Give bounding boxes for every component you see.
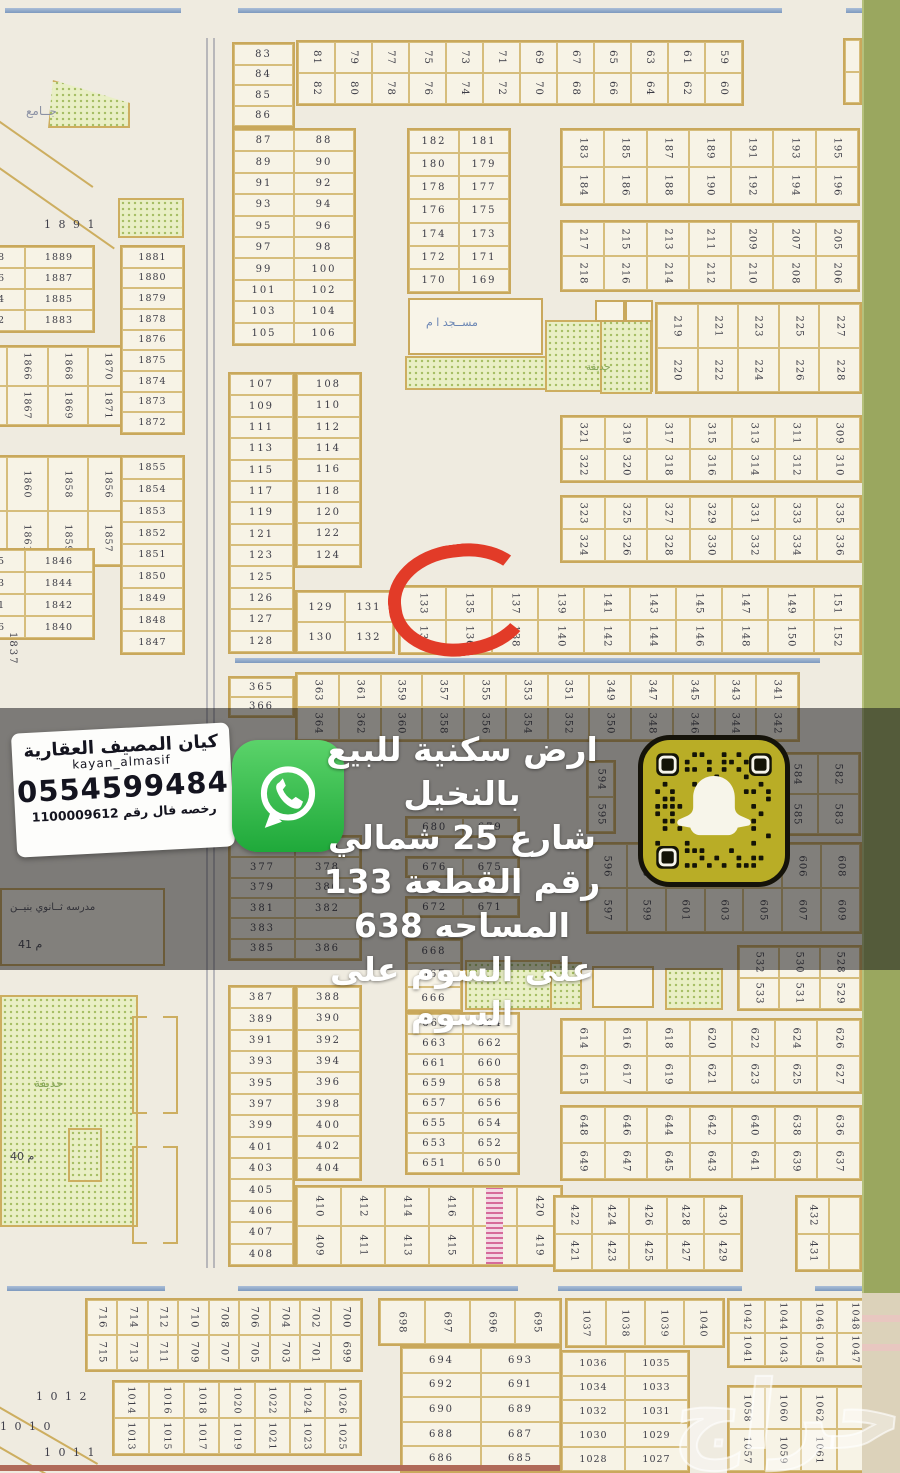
- plot-cell: 1039: [645, 1300, 684, 1346]
- plot-cell: 1842: [25, 594, 93, 616]
- plot-cell: 1888: [0, 247, 25, 268]
- plot-cell: 317: [647, 417, 690, 449]
- plot-cell: 651: [407, 1153, 463, 1173]
- plot-cell: 180: [409, 153, 459, 176]
- plot-cell: 1883: [25, 310, 93, 331]
- plot-cell: 212: [689, 256, 731, 290]
- plot-cell: 143: [630, 587, 676, 620]
- plot-cell: 334: [775, 529, 818, 561]
- plot-cell: 1889: [25, 247, 93, 268]
- plot-cell: 687: [481, 1422, 560, 1447]
- plot-cell: 421: [555, 1234, 592, 1271]
- plot-cell: 707: [209, 1335, 239, 1370]
- plot-cell: 413: [385, 1226, 429, 1265]
- street-bracket: [163, 1146, 178, 1244]
- plot-cell: 146: [676, 620, 722, 653]
- plot-cell: 331: [732, 497, 775, 529]
- plot-cell: 399: [230, 1115, 293, 1136]
- plot-cell: 406: [230, 1201, 293, 1222]
- plot-cell: 81: [298, 42, 335, 73]
- plot-cell: 93: [234, 194, 294, 215]
- plot-cell: 110: [297, 395, 360, 416]
- plot-cell: 187: [647, 130, 689, 167]
- plot-cell: 125: [230, 566, 293, 587]
- plot-cell: 120: [297, 502, 360, 523]
- plot-cell: 650: [463, 1153, 519, 1173]
- map-label: 1 0 1 2: [36, 1390, 88, 1403]
- plot-cell: 122: [297, 523, 360, 544]
- plot-cell: 219: [657, 304, 698, 348]
- plot-cell: 1032: [562, 1400, 625, 1424]
- park-1881: [118, 198, 184, 238]
- plot-block-129-132: 129131130132: [295, 590, 395, 654]
- plot-cell: 206: [816, 256, 858, 290]
- plot-cell: 351: [548, 674, 590, 707]
- plot-cell: 1038: [606, 1300, 645, 1346]
- plot-cell: 121: [230, 524, 293, 545]
- plot-block-top-right-partial: [843, 38, 862, 105]
- plot-cell: 702: [300, 1300, 330, 1335]
- plot-block-1872-1881: 188118801879187818761875187418731872: [120, 245, 185, 435]
- plot-cell: 1021: [255, 1418, 290, 1454]
- plot-cell: 429: [704, 1234, 741, 1271]
- plot-cell: 72: [483, 73, 520, 104]
- plot-cell: 1858: [48, 457, 88, 511]
- plot-cell: 349: [589, 674, 631, 707]
- plot-cell: 615: [562, 1056, 605, 1092]
- plot-cell: 393: [230, 1051, 293, 1072]
- plot-cell: 425: [629, 1234, 666, 1271]
- plot-cell: 703: [270, 1335, 300, 1370]
- plot-cell: 97: [234, 237, 294, 258]
- plot-cell: 347: [631, 674, 673, 707]
- plot-cell: 149: [768, 587, 814, 620]
- plot-cell: 95: [234, 216, 294, 237]
- plot-cell: 624: [775, 1020, 818, 1056]
- plot-cell: 692: [402, 1373, 481, 1398]
- plot-cell: 218: [562, 256, 604, 290]
- plot-cell: 643: [690, 1143, 733, 1179]
- plot-cell: 173: [459, 223, 509, 246]
- plot-cell: 365: [230, 678, 293, 697]
- plot-cell: 148: [722, 620, 768, 653]
- plot-block-323-336: 3233253273293313333353243263283303323343…: [560, 495, 862, 563]
- plot-cell: 170: [409, 269, 459, 292]
- plot-cell: 322: [562, 449, 605, 481]
- plot-cell: 62: [668, 73, 705, 104]
- plot-cell: 638: [775, 1107, 818, 1143]
- plot-cell: 1843: [0, 572, 25, 594]
- map-label: 1 8 9 1: [44, 218, 96, 231]
- plot-cell: 118: [297, 481, 360, 502]
- plot-cell: 1887: [25, 268, 93, 289]
- plot-cell: 700: [331, 1300, 361, 1335]
- plot-block-695-698: 698697696695: [378, 1298, 562, 1346]
- plot-cell: [829, 1197, 861, 1234]
- plot-cell: 210: [731, 256, 773, 290]
- plot-cell: 195: [816, 130, 858, 167]
- listing-screenshot: 8384858687888990919293949596979899100101…: [0, 0, 900, 1473]
- plot-block-169-182: 1821811801791781771761751741731721711701…: [407, 128, 511, 294]
- map-label: 1837: [7, 632, 18, 665]
- plot-cell: 1855: [122, 457, 183, 479]
- plot-cell: 98: [294, 237, 354, 258]
- plot-cell: 150: [768, 620, 814, 653]
- plot-block-685-694: 694693692691690689688687686685: [400, 1346, 562, 1473]
- plot-cell: 223: [738, 304, 779, 348]
- road-red: [0, 1465, 560, 1471]
- plot-cell: 691: [481, 1373, 560, 1398]
- plot-cell: 217: [562, 222, 604, 256]
- plot-cell: 82: [298, 73, 335, 104]
- plot-cell: 1020: [219, 1382, 254, 1418]
- road-blue: [7, 1286, 165, 1291]
- plot-cell: 710: [178, 1300, 208, 1335]
- plot-cell: 1028: [562, 1447, 625, 1471]
- plot-cell: 1868: [48, 347, 88, 386]
- plot-cell: 1034: [562, 1376, 625, 1400]
- plot-cell: 1026: [325, 1382, 360, 1418]
- plot-block-1041-1048: 10421044104610481041104310451047: [727, 1298, 875, 1368]
- plot-cell: 92: [294, 173, 354, 194]
- plot-cell: 1885: [25, 289, 93, 310]
- plot-cell: 213: [647, 222, 689, 256]
- plot-cell: 320: [605, 449, 648, 481]
- plot-cell: 617: [605, 1056, 648, 1092]
- plot-cell: 645: [647, 1143, 690, 1179]
- plot-cell: 186: [604, 167, 646, 204]
- plot-cell: 1881: [122, 247, 183, 268]
- plot-cell: 699: [331, 1335, 361, 1370]
- plot-cell: 659: [407, 1074, 463, 1094]
- plot-cell: 1847: [122, 631, 183, 653]
- plot-cell: 1860: [7, 457, 47, 511]
- plot-block-1847-1855: 185518541853185218511850184918481847: [120, 455, 185, 655]
- plot-cell: 107: [230, 374, 293, 395]
- plot-cell: 1023: [290, 1418, 325, 1454]
- plot-cell: 326: [605, 529, 648, 561]
- plot-block-650-665: 6656646636626616606596586576566556546536…: [405, 1012, 520, 1175]
- plot-cell: 716: [87, 1300, 117, 1335]
- plot-cell: 1845: [0, 550, 25, 572]
- plot-cell: 408: [230, 1244, 293, 1265]
- plot-cell: 329: [690, 497, 733, 529]
- small-park: [68, 1128, 102, 1182]
- plot-cell: 1044: [765, 1300, 801, 1333]
- plot-cell: 415: [429, 1226, 473, 1265]
- plot-cell: 69: [520, 42, 557, 73]
- park-219: [600, 318, 652, 394]
- plot-cell: 145: [676, 587, 722, 620]
- plot-cell: 144: [630, 620, 676, 653]
- plot-cell: 129: [297, 592, 345, 622]
- plot-cell: 172: [409, 246, 459, 269]
- plot-cell: 343: [715, 674, 757, 707]
- plot-cell: 207: [773, 222, 815, 256]
- plot-cell: 79: [335, 42, 372, 73]
- plot-cell: 196: [816, 167, 858, 204]
- plot-cell: 316: [690, 449, 733, 481]
- snapcode-graphic: [643, 740, 785, 882]
- plot-block-1866-1871: 186618681870186718691871: [0, 345, 130, 427]
- plot-cell: 345: [673, 674, 715, 707]
- plot-cell: 324: [562, 529, 605, 561]
- plot-cell: 220: [657, 348, 698, 392]
- plot-cell: 647: [605, 1143, 648, 1179]
- plot-cell: [0, 457, 7, 511]
- plot-cell: 1016: [149, 1382, 184, 1418]
- plot-cell: 1853: [122, 501, 183, 523]
- plot-block-421-430: 422424426428430421423425427429: [553, 1195, 743, 1272]
- plot-cell: 1867: [7, 386, 47, 425]
- map-label: م 40: [10, 1150, 34, 1163]
- plot-cell: 1014: [114, 1382, 149, 1418]
- plot-block-699-716: 7167147127107087067047027007157137117097…: [85, 1298, 363, 1372]
- plot-cell: 1030: [562, 1423, 625, 1447]
- plot-cell: 533: [739, 978, 779, 1009]
- plot-block-205-218: 2172152132112092072052182162142122102082…: [560, 220, 860, 292]
- plot-cell: 321: [562, 417, 605, 449]
- plot-cell: 695: [515, 1300, 560, 1344]
- plot-cell: 328: [647, 529, 690, 561]
- plot-cell: 83: [234, 44, 293, 65]
- plot-cell: 174: [409, 223, 459, 246]
- plot-cell: 623: [732, 1056, 775, 1092]
- plot-cell: 325: [605, 497, 648, 529]
- plot-cell: 80: [335, 73, 372, 104]
- plot-cell: 363: [297, 674, 339, 707]
- plot-cell: 106: [294, 323, 354, 344]
- plot-block-431-432: 432431: [795, 1195, 862, 1272]
- plot-cell: 192: [731, 167, 773, 204]
- plot-cell: 208: [773, 256, 815, 290]
- promo-line-2: شارع 25 شمالي: [278, 816, 646, 860]
- plot-cell: 619: [647, 1056, 690, 1092]
- plot-cell: 130: [297, 622, 345, 652]
- plot-cell: 127: [230, 609, 293, 630]
- green-band: [862, 0, 900, 1293]
- plot-cell: 402: [297, 1136, 360, 1157]
- plot-cell: 132: [345, 622, 393, 652]
- plot-cell: 663: [407, 1034, 463, 1054]
- plot-cell: 1850: [122, 566, 183, 588]
- plot-cell: 709: [178, 1335, 208, 1370]
- plot-cell: 639: [775, 1143, 818, 1179]
- plot-cell: 694: [402, 1348, 481, 1373]
- promo-line-5: على السوم على السوم: [278, 948, 646, 1036]
- plot-cell: 222: [698, 348, 739, 392]
- plot-cell: 660: [463, 1054, 519, 1074]
- promo-line-4: المساحه 638: [278, 904, 646, 948]
- plot-cell: 396: [297, 1072, 360, 1093]
- plot-cell: 111: [230, 417, 293, 438]
- plot-cell: 655: [407, 1113, 463, 1133]
- plot-cell: 312: [775, 449, 818, 481]
- plot-cell: 78: [372, 73, 409, 104]
- plot-cell: 228: [819, 348, 860, 392]
- plot-cell: 409: [297, 1226, 341, 1265]
- plot-cell: 1873: [122, 392, 183, 413]
- plot-cell: 311: [775, 417, 818, 449]
- plot-cell: [0, 347, 7, 386]
- plot-cell: 708: [209, 1300, 239, 1335]
- triangle-park: [48, 80, 130, 128]
- plot-cell: 654: [463, 1113, 519, 1133]
- plot-cell: 214: [647, 256, 689, 290]
- agency-sticker: كيان المصيف العقارية kayan_almasif 05545…: [11, 722, 235, 857]
- small-box-1: [595, 300, 625, 322]
- road-blue: [846, 8, 862, 13]
- plot-cell: 698: [380, 1300, 425, 1344]
- haraj-watermark: حراج: [670, 1361, 900, 1471]
- plot-cell: 1013: [114, 1418, 149, 1454]
- plot-cell: 126: [230, 588, 293, 609]
- plot-cell: 1846: [25, 550, 93, 572]
- map-label: 1 0 1 0: [0, 1420, 52, 1433]
- snapchat-snapcode[interactable]: [638, 735, 790, 887]
- plot-cell: 189: [689, 130, 731, 167]
- plot-cell: 124: [297, 545, 360, 566]
- plot-cell: 139: [538, 587, 584, 620]
- plot-cell: 690: [402, 1397, 481, 1422]
- plot-cell: 1884: [0, 289, 25, 310]
- plot-cell: 1841: [0, 594, 25, 616]
- plot-cell: 400: [297, 1115, 360, 1136]
- plot-cell: 314: [732, 449, 775, 481]
- plot-cell: 625: [775, 1056, 818, 1092]
- plot-cell: 355: [464, 674, 506, 707]
- plot-cell: 71: [483, 42, 520, 73]
- plot-cell: 114: [297, 438, 360, 459]
- plot-cell: 427: [667, 1234, 704, 1271]
- plot-block-83-86: 83848586: [232, 42, 295, 128]
- plot-cell: 620: [690, 1020, 733, 1056]
- street-bracket: [163, 1016, 178, 1114]
- plot-block-107-128: 107109111113115117119121123125126127128: [228, 372, 295, 654]
- plot-cell: 424: [592, 1197, 629, 1234]
- plot-cell: 88: [294, 130, 354, 151]
- plot-cell: 1878: [122, 309, 183, 330]
- plot-cell: 357: [422, 674, 464, 707]
- snapcode-corner-tr: [749, 753, 772, 776]
- plot-cell: 653: [407, 1133, 463, 1153]
- plot-cell: 141: [584, 587, 630, 620]
- plot-cell: 622: [732, 1020, 775, 1056]
- plot-cell: 1015: [149, 1418, 184, 1454]
- plot-cell: 648: [562, 1107, 605, 1143]
- plot-cell: 1880: [122, 268, 183, 289]
- road-blue: [235, 658, 820, 663]
- snapcode-corner-tl: [656, 753, 679, 776]
- plot-cell: 188: [647, 167, 689, 204]
- plot-cell: 332: [732, 529, 775, 561]
- plot-cell: 87: [234, 130, 294, 151]
- plot-cell: 1866: [7, 347, 47, 386]
- plot-cell: 657: [407, 1094, 463, 1114]
- plot-cell: 181: [459, 130, 509, 153]
- snapcode-corner-bl: [656, 846, 679, 869]
- plot-cell: 430: [704, 1197, 741, 1234]
- plot-cell: 66: [594, 73, 631, 104]
- plot-cell: 621: [690, 1056, 733, 1092]
- plot-cell: 658: [463, 1074, 519, 1094]
- plot-cell: 323: [562, 497, 605, 529]
- plot-cell: 117: [230, 481, 293, 502]
- plot-cell: 221: [698, 304, 739, 348]
- plot-cell: 224: [738, 348, 779, 392]
- plot-cell: 104: [294, 301, 354, 322]
- plot-cell: 531: [779, 978, 819, 1009]
- plot-cell: 115: [230, 460, 293, 481]
- plot-cell: 404: [297, 1158, 360, 1179]
- plot-cell: 432: [797, 1197, 829, 1234]
- road-blue: [558, 1286, 742, 1291]
- plot-cell: 353: [506, 674, 548, 707]
- plot-cell: [0, 386, 7, 425]
- plot-cell: 642: [690, 1107, 733, 1143]
- plot-cell: 662: [463, 1034, 519, 1054]
- plot-block-636-649: 6486466446426406386366496476456436416396…: [560, 1105, 862, 1181]
- plot-cell: 171: [459, 246, 509, 269]
- plot-cell: 361: [339, 674, 381, 707]
- plot-cell: 652: [463, 1133, 519, 1153]
- plot-cell: 309: [817, 417, 860, 449]
- plot-cell: 397: [230, 1094, 293, 1115]
- plot-cell: 712: [148, 1300, 178, 1335]
- plot-cell: 1849: [122, 588, 183, 610]
- plot-block-409-420: 410412414416418420409411413415417419: [295, 1185, 563, 1267]
- plot-cell: [829, 1234, 861, 1271]
- plot-cell: [845, 40, 860, 72]
- plot-cell: 176: [409, 199, 459, 222]
- plot-cell: 140: [538, 620, 584, 653]
- plot-cell: 405: [230, 1179, 293, 1200]
- plot-cell: 177: [459, 176, 509, 199]
- plot-cell: 1875: [122, 350, 183, 371]
- plot-cell: 77: [372, 42, 409, 73]
- park-533-mid: [665, 968, 723, 1010]
- plot-cell: 1046: [801, 1300, 837, 1333]
- plot-cell: 327: [647, 497, 690, 529]
- plot-cell: 193: [773, 130, 815, 167]
- plot-cell: 627: [817, 1056, 860, 1092]
- plot-cell: 706: [239, 1300, 269, 1335]
- plot-cell: 713: [117, 1335, 147, 1370]
- plot-cell: 194: [773, 167, 815, 204]
- plot-cell: 74: [446, 73, 483, 104]
- plot-cell: 73: [446, 42, 483, 73]
- plot-cell: 636: [817, 1107, 860, 1143]
- plot-cell: 116: [297, 459, 360, 480]
- plot-cell: 76: [409, 73, 446, 104]
- plot-cell: 696: [470, 1300, 515, 1344]
- plot-cell: 403: [230, 1158, 293, 1179]
- plot-cell: 1025: [325, 1418, 360, 1454]
- plot-cell: 428: [667, 1197, 704, 1234]
- plot-cell: 618: [647, 1020, 690, 1056]
- plot-cell: 412: [341, 1187, 385, 1226]
- plot-cell: 333: [775, 497, 818, 529]
- plot-cell: 96: [294, 216, 354, 237]
- plot-cell: 1040: [684, 1300, 723, 1346]
- plot-cell: 414: [385, 1187, 429, 1226]
- plot-cell: 209: [731, 222, 773, 256]
- plot-cell: 1886: [0, 268, 25, 289]
- plot-cell: 310: [817, 449, 860, 481]
- plot-cell: 85: [234, 85, 293, 106]
- plot-cell: 112: [297, 417, 360, 438]
- plot-cell: 103: [234, 301, 294, 322]
